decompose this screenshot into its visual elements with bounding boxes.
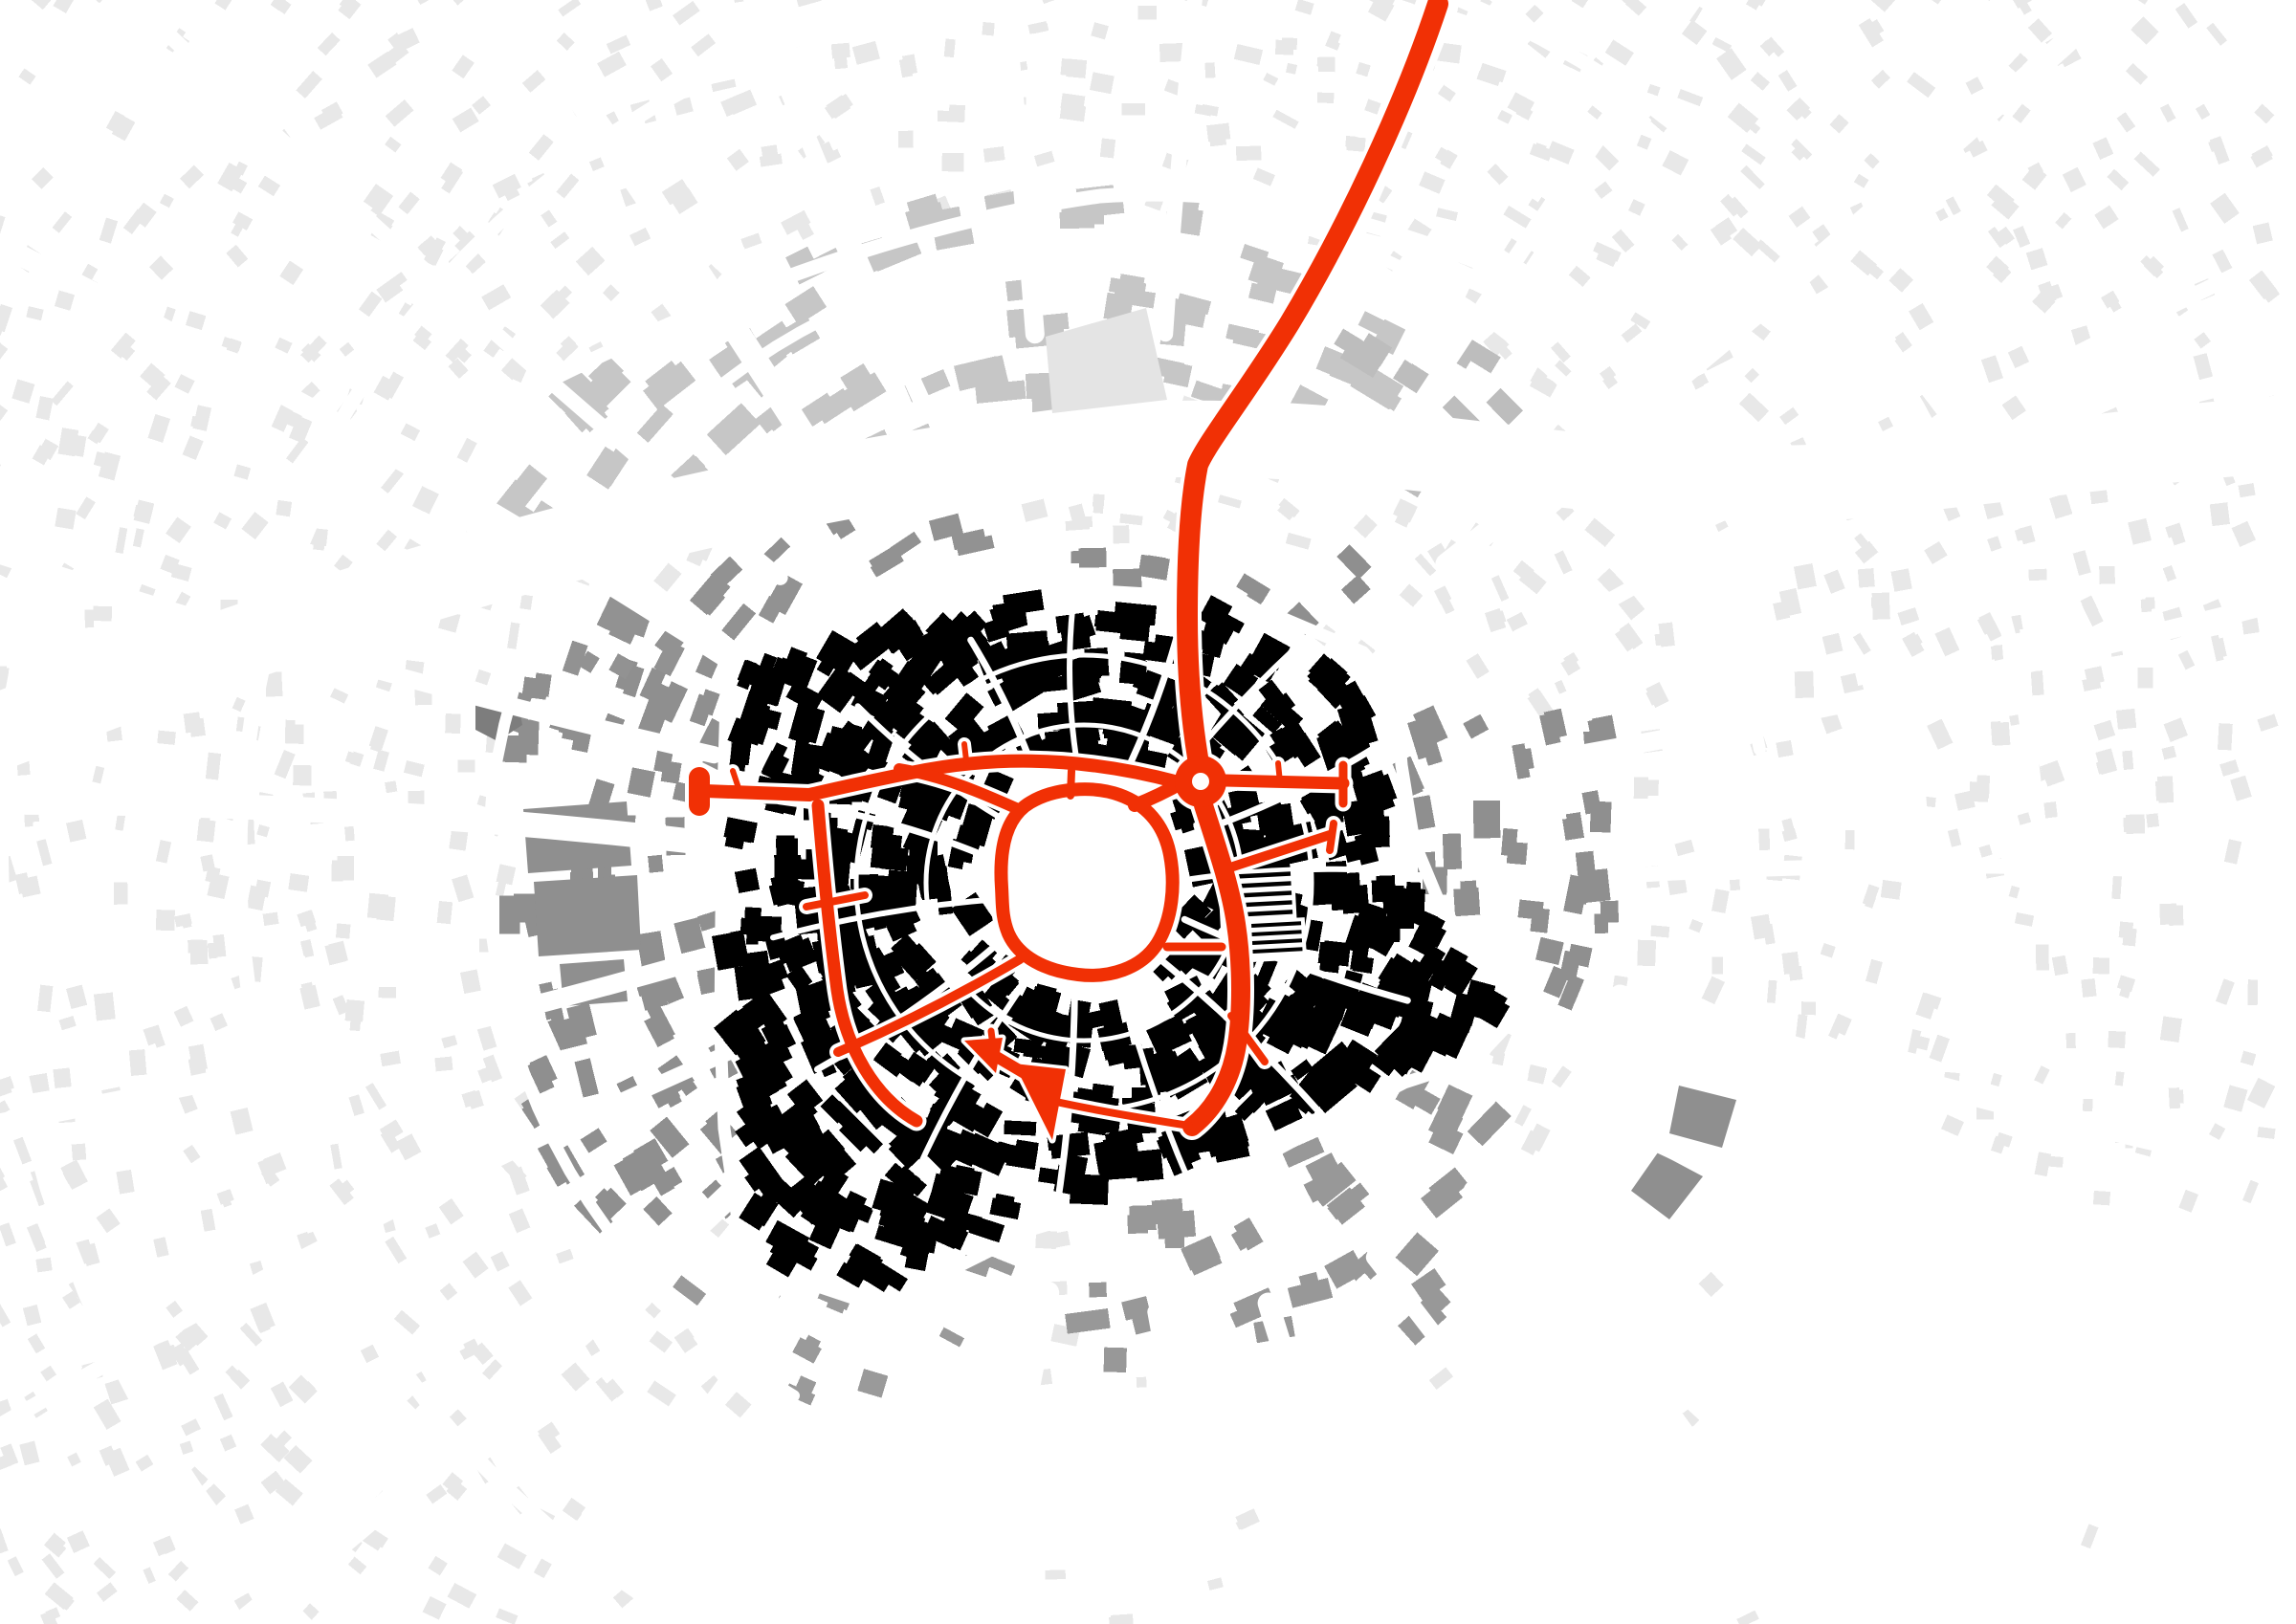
west-radial-tick-2 — [964, 744, 966, 760]
figure-ground-map — [0, 0, 2296, 1624]
large-building-slab — [534, 875, 641, 956]
city-map-canvas — [0, 0, 2296, 1624]
large-building-slab — [1669, 1086, 1736, 1148]
east-radial-tick — [1278, 763, 1280, 782]
striped-building-block — [1247, 917, 1307, 962]
roundabout-island — [1192, 773, 1209, 790]
east-radial-road — [1225, 780, 1343, 783]
east-spur-endcap — [1330, 823, 1334, 850]
